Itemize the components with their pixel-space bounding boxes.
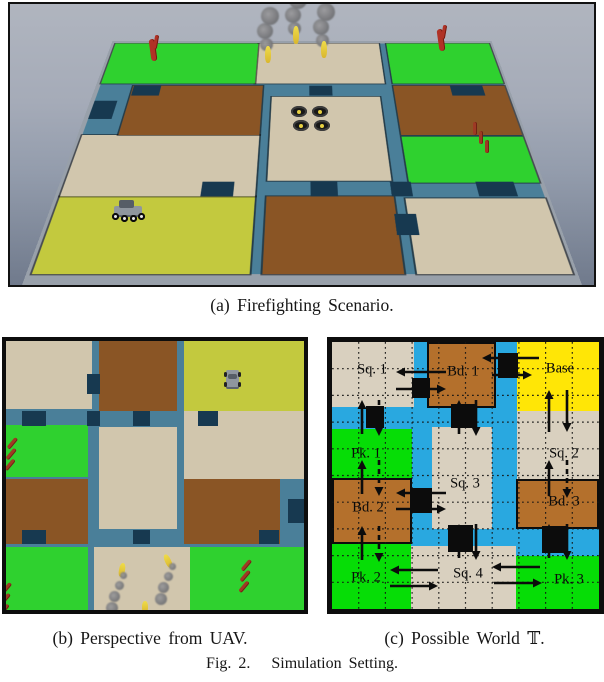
smoke-puff (169, 563, 176, 570)
transition-arrow-head (472, 427, 481, 436)
fire-flame-bar (153, 35, 159, 49)
rover-cab (119, 200, 134, 208)
fire-stick (4, 459, 15, 472)
region-label-sq1: Sq. 1 (357, 362, 387, 379)
region-label-pk2: Pk. 2 (351, 570, 381, 587)
smoke-puff (115, 581, 124, 590)
door-icon (451, 404, 476, 428)
region-label-bd3: Bd. 3 (548, 494, 579, 511)
figure-2-simulation-setting: (a) Firefighting Scenario. Sq. 1Bd. 1Bas… (0, 0, 604, 682)
rover-wheel (138, 213, 145, 220)
panel-uav-perspective (2, 337, 308, 614)
smoke-puff (285, 7, 301, 23)
rotor-hub (318, 110, 322, 114)
smoke-puff (106, 602, 118, 614)
drone-rotor (293, 120, 309, 131)
rotor-hub (299, 124, 303, 128)
smoke-puff (109, 591, 120, 602)
rover-wheel (112, 213, 119, 220)
transition-arrow-head (437, 385, 446, 394)
caption-a: (a) Firefighting Scenario. (0, 295, 604, 316)
rover-wheel (224, 382, 227, 387)
region-label-pk1: Pk. 1 (351, 446, 381, 463)
transition-arrow-head (563, 551, 572, 560)
rotor-hub (297, 110, 301, 114)
region-label-pk3: Pk. 3 (554, 572, 584, 589)
door-icon (366, 406, 384, 428)
rotor-hub (320, 124, 324, 128)
transition-arrow-head (523, 371, 532, 380)
transition-arrow-head (375, 553, 384, 562)
smoke-puff (120, 572, 127, 579)
figure-caption: Fig. 2. Simulation Setting. (0, 655, 604, 673)
rover-wheel (238, 382, 241, 387)
rover-cab (228, 374, 237, 379)
door-icon (542, 526, 567, 553)
region-label-sq4: Sq. 4 (453, 566, 483, 583)
scene-sprites-3d (10, 4, 594, 285)
region-label-sq2: Sq. 2 (549, 446, 579, 463)
transition-arrow-head (492, 563, 501, 572)
smoke-puff (158, 582, 169, 593)
fire-stick (473, 122, 477, 135)
rover-wheel (130, 215, 137, 222)
smoke-puff (317, 3, 335, 21)
drone-rotor (312, 106, 328, 117)
rover-wheel (121, 215, 128, 222)
fire-stick (485, 140, 489, 153)
transition-arrow-head (482, 354, 491, 363)
wheel-hub (123, 217, 126, 220)
smoke-puff (164, 572, 173, 581)
region-label-base: Base (546, 361, 574, 378)
wheel-hub (114, 215, 117, 218)
transition-arrow-head (375, 427, 384, 436)
smoke-puff (313, 19, 329, 35)
transition-arrow-head (375, 487, 384, 496)
flame-icon (142, 601, 148, 613)
transition-arrow-head (533, 579, 542, 588)
region-label-sq3: Sq. 3 (450, 476, 480, 493)
flame-icon (265, 46, 271, 63)
wheel-hub (140, 215, 143, 218)
flame-icon (293, 26, 299, 44)
transition-arrow-head (358, 400, 367, 409)
drone-rotor (314, 120, 330, 131)
caption-b: (b) Perspective from UAV. (0, 628, 300, 649)
fire-stick (2, 604, 10, 614)
transition-arrow-head (396, 489, 405, 498)
scene-sprites-topdown (6, 341, 304, 610)
panel-firefighting-scenario (8, 2, 596, 287)
smoke-puff (261, 7, 279, 25)
region-label-bd1: Bd. 1 (447, 364, 478, 381)
fire-flame-bar (441, 25, 447, 39)
fire-stick (479, 131, 483, 144)
smoke-puff (155, 593, 167, 605)
flame-icon (321, 41, 327, 58)
transition-arrow-head (437, 505, 446, 514)
wheel-hub (132, 217, 135, 220)
transition-arrow-head (545, 390, 554, 399)
drone-rotor (291, 106, 307, 117)
rover-wheel (224, 372, 227, 377)
rover-wheel (238, 372, 241, 377)
caption-c: (c) Possible World 𝕋. (325, 628, 604, 649)
region-label-bd2: Bd. 2 (352, 500, 383, 517)
transition-arrow-head (563, 423, 572, 432)
panel-possible-world-map: Sq. 1Bd. 1BasePk. 1Sq. 2Sq. 3Bd. 2Bd. 3P… (327, 337, 604, 614)
transition-arrow-head (390, 566, 399, 575)
fire-stick (238, 581, 249, 594)
smoke-puff (257, 23, 273, 39)
